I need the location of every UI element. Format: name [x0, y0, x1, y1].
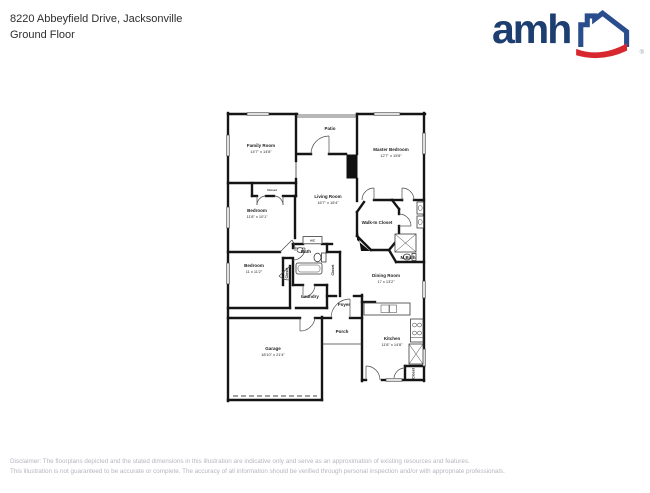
label-bedroom-3: Bedroom	[244, 263, 264, 268]
stove-icon	[411, 319, 424, 342]
fireplace	[347, 155, 358, 179]
label-bath: Bath	[301, 249, 311, 254]
bathtub-icon	[296, 263, 322, 274]
disclaimer-line-2: This illustration is not guaranteed to b…	[10, 467, 505, 477]
disclaimer: Disclaimer: The floorplans depicted and …	[10, 457, 505, 477]
kitchen-fixtures	[364, 303, 423, 364]
label-closet-left: Closet	[285, 267, 289, 279]
label-living-room: Living Room	[314, 194, 341, 199]
dims-dining-room: 17 x 13'2"	[377, 279, 395, 284]
label-kitchen: Kitchen	[384, 336, 401, 341]
label-porch: Porch	[336, 329, 349, 334]
label-bedroom-2: Bedroom	[247, 208, 267, 213]
label-walk-in-closet: Walk-In Closet	[362, 220, 393, 225]
dims-kitchen: 11'8" x 14'8"	[381, 342, 403, 347]
floorplan-page: { "header": { "address": "8220 Abbeyfiel…	[0, 0, 650, 488]
label-patio: Patio	[324, 126, 335, 131]
label-closet-kitchen: Closet	[412, 367, 416, 379]
label-hall-closet: Closet	[267, 188, 276, 192]
label-closet-right: Closet	[331, 264, 335, 276]
label-family-room: Family Room	[247, 143, 275, 148]
dims-garage: 18'10" x 21'4"	[261, 352, 285, 357]
label-garage: Garage	[265, 346, 281, 351]
dims-family-room: 14'7" x 14'8"	[250, 149, 272, 154]
label-m-bath: M.Bath	[401, 255, 416, 260]
dims-living-room: 16'7" x 16'4"	[317, 200, 339, 205]
toilet-icon	[322, 253, 327, 262]
label-foyer: Foyer	[338, 302, 351, 307]
disclaimer-line-1: Disclaimer: The floorplans depicted and …	[10, 457, 505, 467]
dims-master-bedroom: 12'7" x 15'8"	[380, 153, 402, 158]
dims-bedroom-3: 11 x 11'2"	[246, 269, 263, 274]
label-dining-room: Dining Room	[372, 273, 400, 278]
label-laundry: Laundry	[301, 294, 319, 299]
floor-plan: Family Room 14'7" x 14'8" Patio Master B…	[0, 0, 650, 488]
label-master-bedroom: Master Bedroom	[373, 147, 409, 152]
label-ac: A/C	[310, 239, 316, 243]
dims-bedroom-2: 11'8" x 10'1"	[246, 214, 268, 219]
